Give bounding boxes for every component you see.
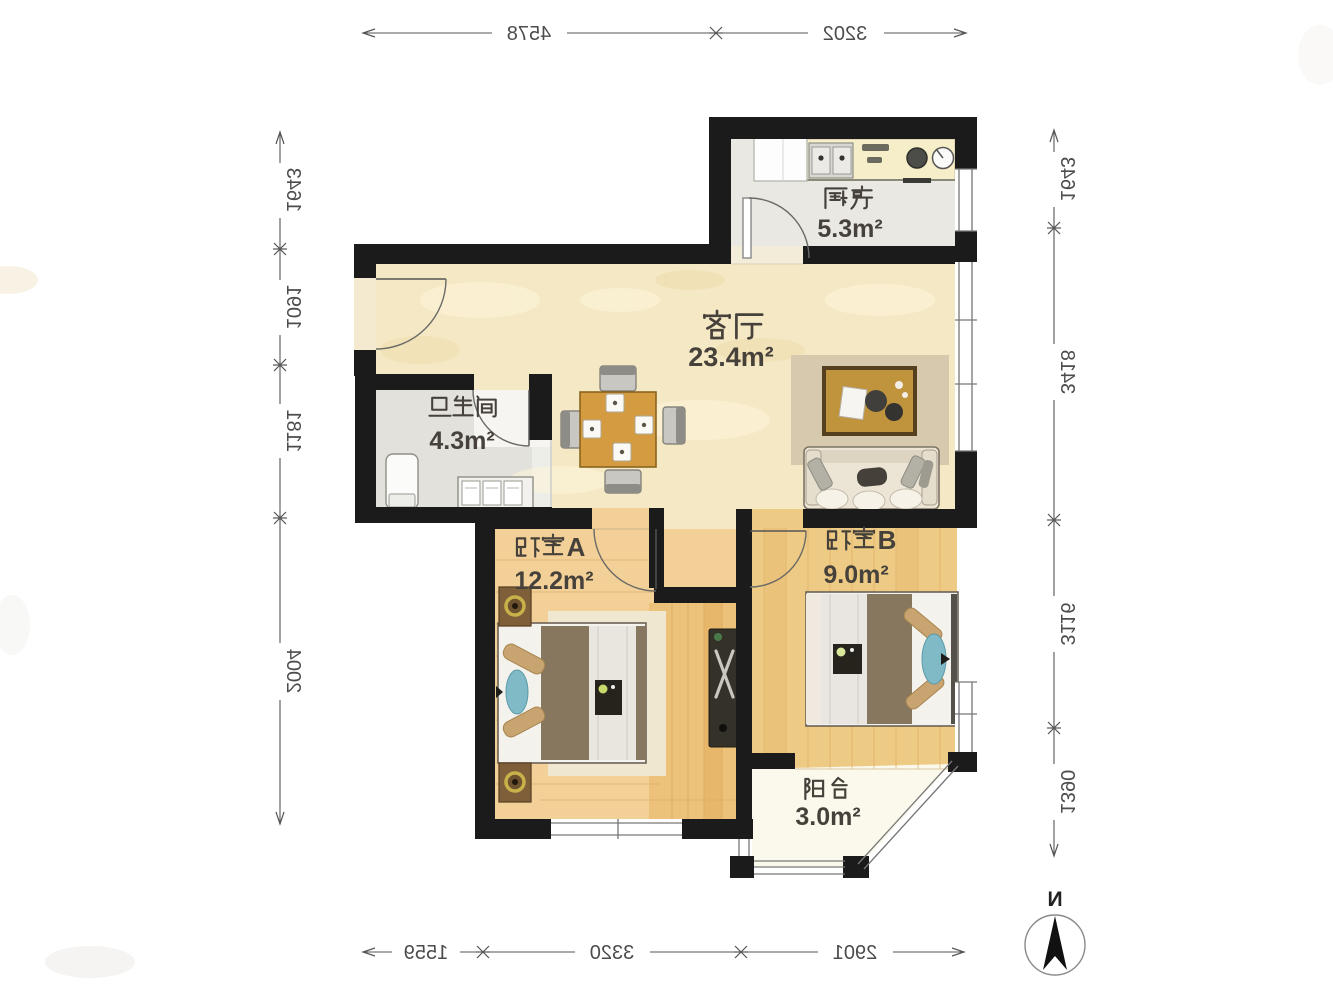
- svg-text:5.3m²: 5.3m²: [817, 215, 882, 243]
- svg-text:1091: 1091: [282, 285, 304, 330]
- svg-text:3320: 3320: [590, 942, 635, 964]
- svg-text:3418: 3418: [1056, 350, 1078, 395]
- svg-text:9.0m²: 9.0m²: [823, 561, 888, 589]
- svg-text:23.4m²: 23.4m²: [688, 342, 774, 372]
- svg-text:3.0m²: 3.0m²: [795, 803, 860, 831]
- svg-text:2901: 2901: [833, 942, 878, 964]
- svg-text:1390: 1390: [1056, 770, 1078, 815]
- svg-text:1559: 1559: [404, 942, 449, 964]
- svg-text:3116: 3116: [1056, 602, 1078, 645]
- svg-text:2004: 2004: [282, 649, 304, 694]
- svg-text:A: A: [567, 532, 586, 562]
- svg-text:4.3m²: 4.3m²: [429, 427, 494, 455]
- svg-text:B: B: [878, 525, 897, 555]
- svg-text:N: N: [1047, 888, 1062, 911]
- svg-text:1643: 1643: [282, 168, 304, 213]
- svg-text:1181: 1181: [282, 409, 304, 452]
- svg-text:1643: 1643: [1056, 157, 1078, 202]
- svg-text:12.2m²: 12.2m²: [514, 567, 593, 595]
- svg-text:3202: 3202: [823, 23, 868, 45]
- svg-text:4578: 4578: [507, 23, 552, 45]
